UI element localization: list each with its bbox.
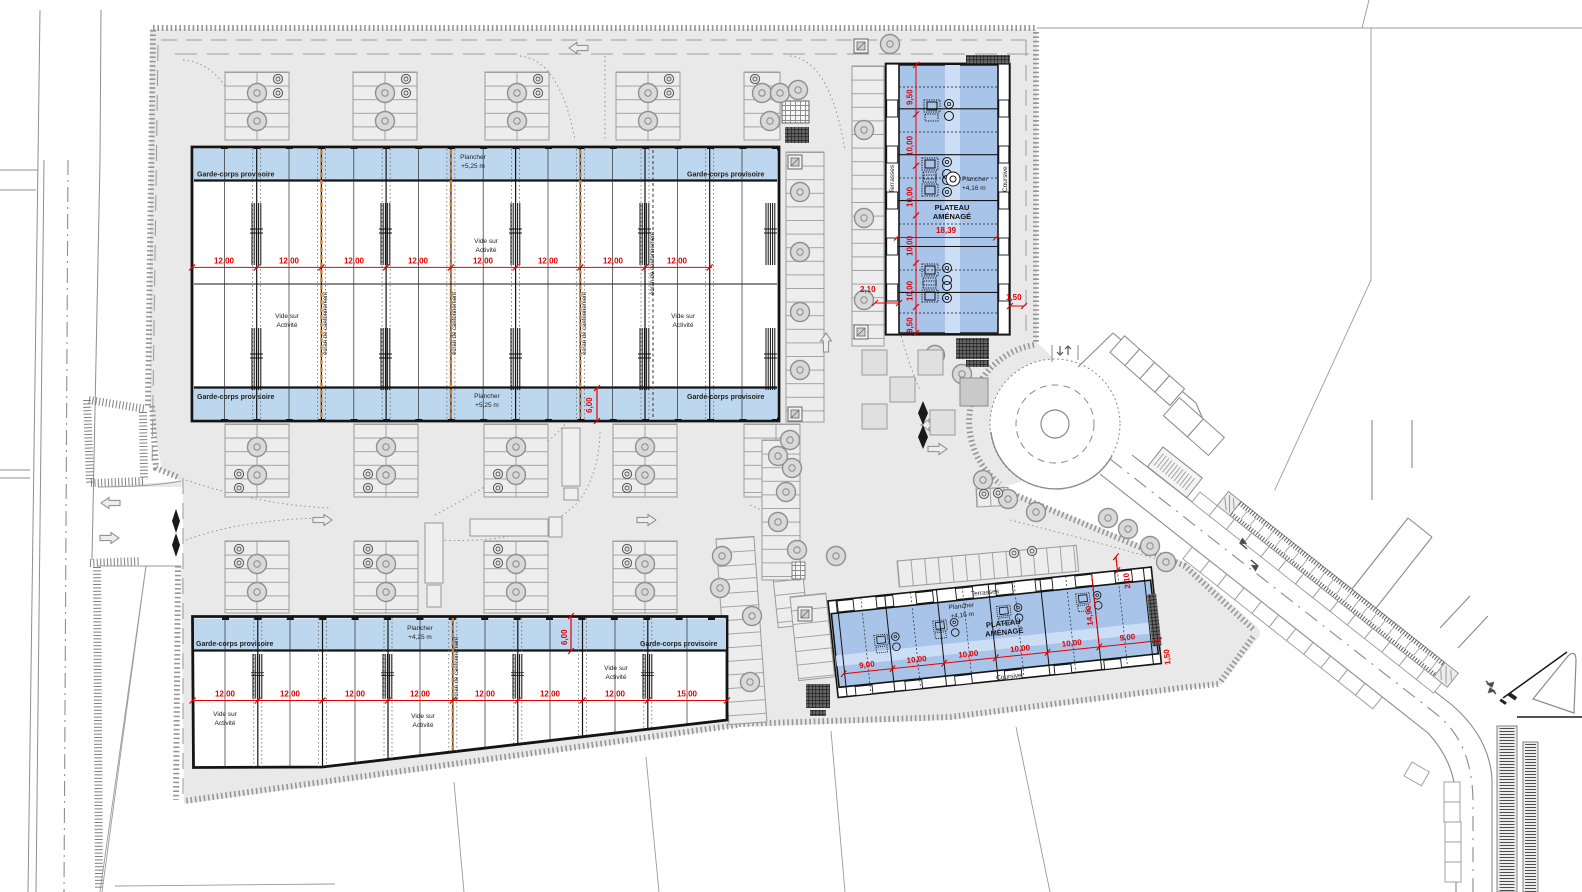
svg-text:6,00: 6,00: [560, 629, 569, 645]
svg-text:Activité: Activité: [215, 720, 236, 727]
svg-text:Garde-corps provisoire: Garde-corps provisoire: [640, 641, 718, 648]
svg-text:12,00: 12,00: [214, 257, 235, 266]
svg-text:12,00: 12,00: [475, 690, 496, 699]
svg-text:+5,25 m: +5,25 m: [461, 163, 485, 170]
svg-text:2,10: 2,10: [860, 285, 876, 294]
svg-text:Coursive: Coursive: [1002, 166, 1009, 192]
svg-text:18,39: 18,39: [936, 226, 957, 235]
svg-text:12,00: 12,00: [538, 257, 559, 266]
svg-text:6,00: 6,00: [585, 397, 594, 413]
svg-text:12,00: 12,00: [410, 690, 431, 699]
svg-text:9,50: 9,50: [906, 317, 915, 333]
svg-text:Garde-corps provisoire: Garde-corps provisoire: [197, 394, 275, 401]
svg-text:10,00: 10,00: [906, 135, 915, 156]
svg-text:12,00: 12,00: [344, 257, 365, 266]
svg-text:Activité: Activité: [673, 322, 694, 329]
svg-text:Garde-corps provisoire: Garde-corps provisoire: [687, 172, 765, 179]
svg-text:12,00: 12,00: [345, 690, 366, 699]
svg-text:12,00: 12,00: [540, 690, 561, 699]
svg-text:12,00: 12,00: [667, 257, 688, 266]
svg-text:Activité: Activité: [277, 322, 298, 329]
svg-text:1,50: 1,50: [1162, 648, 1173, 665]
svg-text:Terrasses: Terrasses: [889, 164, 896, 193]
svg-text:écran de cantonnement: écran de cantonnement: [582, 292, 588, 355]
svg-text:10,00: 10,00: [906, 280, 915, 301]
svg-text:12,00: 12,00: [408, 257, 429, 266]
svg-text:12,00: 12,00: [603, 257, 624, 266]
svg-text:Activité: Activité: [606, 674, 627, 681]
svg-text:Plancher: Plancher: [460, 154, 486, 161]
svg-text:Activité: Activité: [413, 722, 434, 729]
svg-text:Garde-corps provisoire: Garde-corps provisoire: [197, 172, 275, 179]
svg-text:Plancher: Plancher: [474, 393, 500, 400]
svg-text:Activité: Activité: [476, 247, 497, 254]
svg-text:+4,25 m: +4,25 m: [408, 634, 432, 641]
svg-text:Plancher: Plancher: [407, 625, 433, 632]
svg-text:10,00: 10,00: [906, 186, 915, 207]
svg-text:9,00: 9,00: [859, 659, 876, 670]
svg-text:Vide sur: Vide sur: [671, 313, 696, 320]
svg-text:15,00: 15,00: [677, 690, 698, 699]
svg-text:AMÉNAGÉ: AMÉNAGÉ: [933, 212, 971, 221]
svg-text:Garde-corps provisoire: Garde-corps provisoire: [196, 641, 274, 648]
svg-text:Vide sur: Vide sur: [411, 713, 436, 720]
svg-text:12,00: 12,00: [215, 690, 236, 699]
svg-text:9,50: 9,50: [906, 89, 915, 105]
svg-text:Plancher: Plancher: [962, 176, 988, 183]
svg-text:9,00: 9,00: [1119, 632, 1136, 643]
svg-text:12,00: 12,00: [473, 257, 494, 266]
svg-text:12,00: 12,00: [280, 690, 301, 699]
svg-text:Vide sur: Vide sur: [213, 711, 238, 718]
svg-text:2,10: 2,10: [1122, 572, 1133, 589]
svg-text:écran de cantonnement: écran de cantonnement: [454, 637, 460, 700]
svg-text:+4,16 m: +4,16 m: [962, 185, 986, 192]
svg-text:10,00: 10,00: [906, 235, 915, 256]
svg-text:12,00: 12,00: [279, 257, 300, 266]
svg-text:Vide sur: Vide sur: [604, 665, 629, 672]
svg-text:PLATEAU: PLATEAU: [935, 203, 970, 212]
svg-text:écran de cantonnement: écran de cantonnement: [323, 292, 329, 355]
svg-text:écran de cantonnement: écran de cantonnement: [452, 292, 458, 355]
svg-text:Vide sur: Vide sur: [275, 313, 300, 320]
svg-text:+5,25 m: +5,25 m: [475, 402, 499, 409]
svg-text:Garde-corps provisoire: Garde-corps provisoire: [687, 394, 765, 401]
svg-text:12,00: 12,00: [605, 690, 626, 699]
svg-text:1,50: 1,50: [1006, 293, 1022, 302]
svg-text:écran de cantonnement: écran de cantonnement: [650, 232, 656, 295]
svg-text:Vide sur: Vide sur: [474, 238, 499, 245]
